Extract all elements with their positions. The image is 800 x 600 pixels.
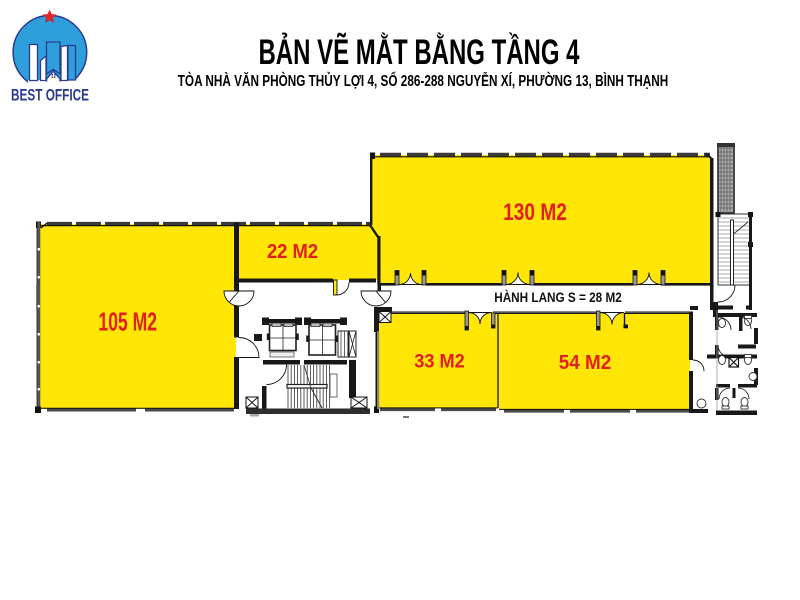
svg-text:54 M2: 54 M2 (559, 351, 612, 374)
svg-text:22 M2: 22 M2 (267, 241, 318, 263)
svg-text:130 M2: 130 M2 (503, 198, 567, 226)
svg-text:HÀNH LANG S = 28 M2: HÀNH LANG S = 28 M2 (494, 289, 622, 305)
svg-text:33 M2: 33 M2 (414, 351, 465, 373)
svg-text:105 M2: 105 M2 (98, 307, 157, 336)
